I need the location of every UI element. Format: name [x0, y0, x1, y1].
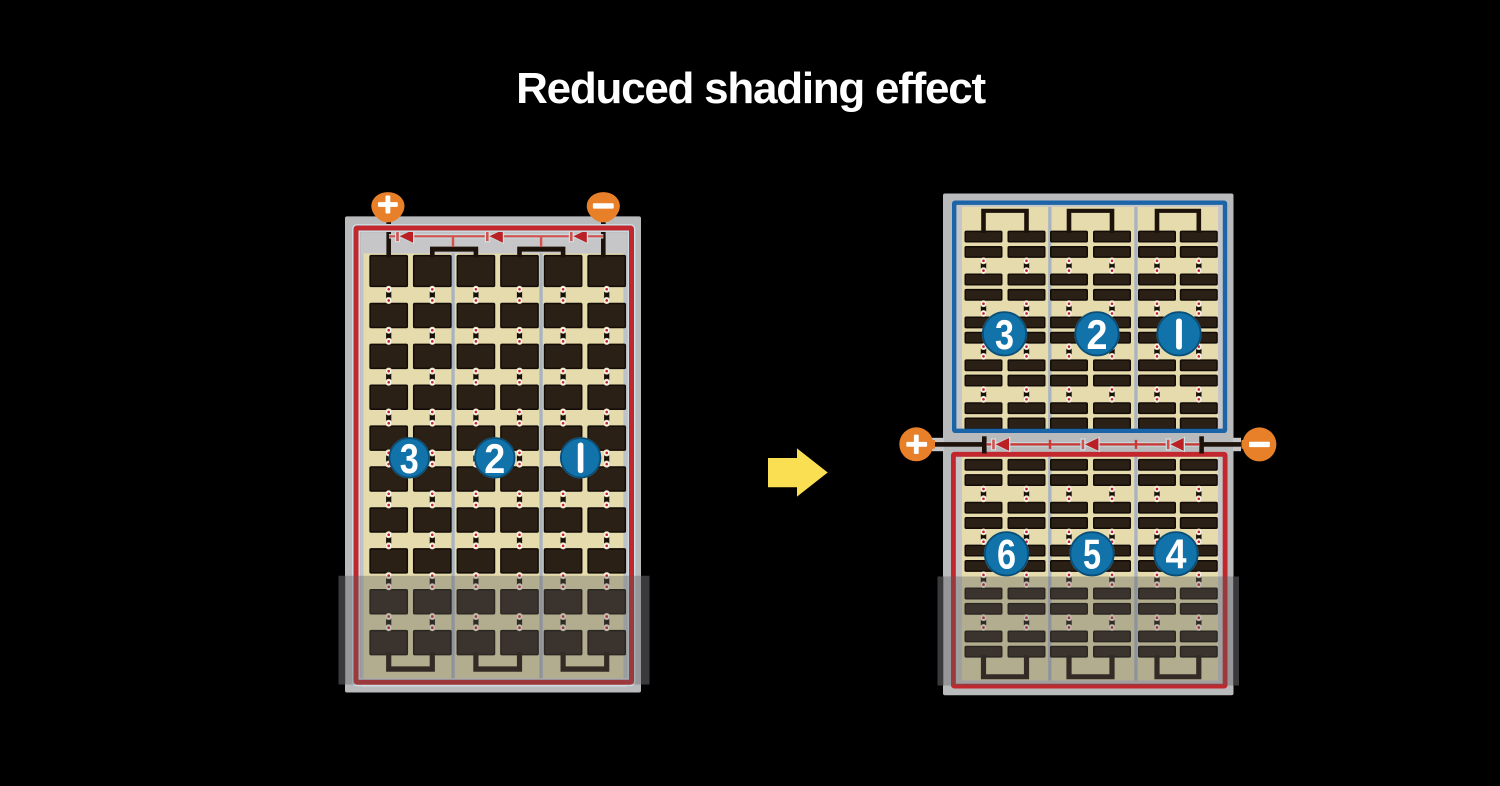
svg-text:2: 2 — [484, 435, 505, 482]
svg-text:6: 6 — [997, 531, 1016, 578]
svg-text:4: 4 — [1166, 531, 1188, 578]
svg-text:3: 3 — [400, 435, 419, 482]
svg-text:3: 3 — [995, 311, 1014, 358]
svg-text:2: 2 — [1087, 311, 1108, 358]
svg-text:5: 5 — [1083, 531, 1101, 578]
svg-text:Reduced shading effect: Reduced shading effect — [516, 64, 986, 113]
